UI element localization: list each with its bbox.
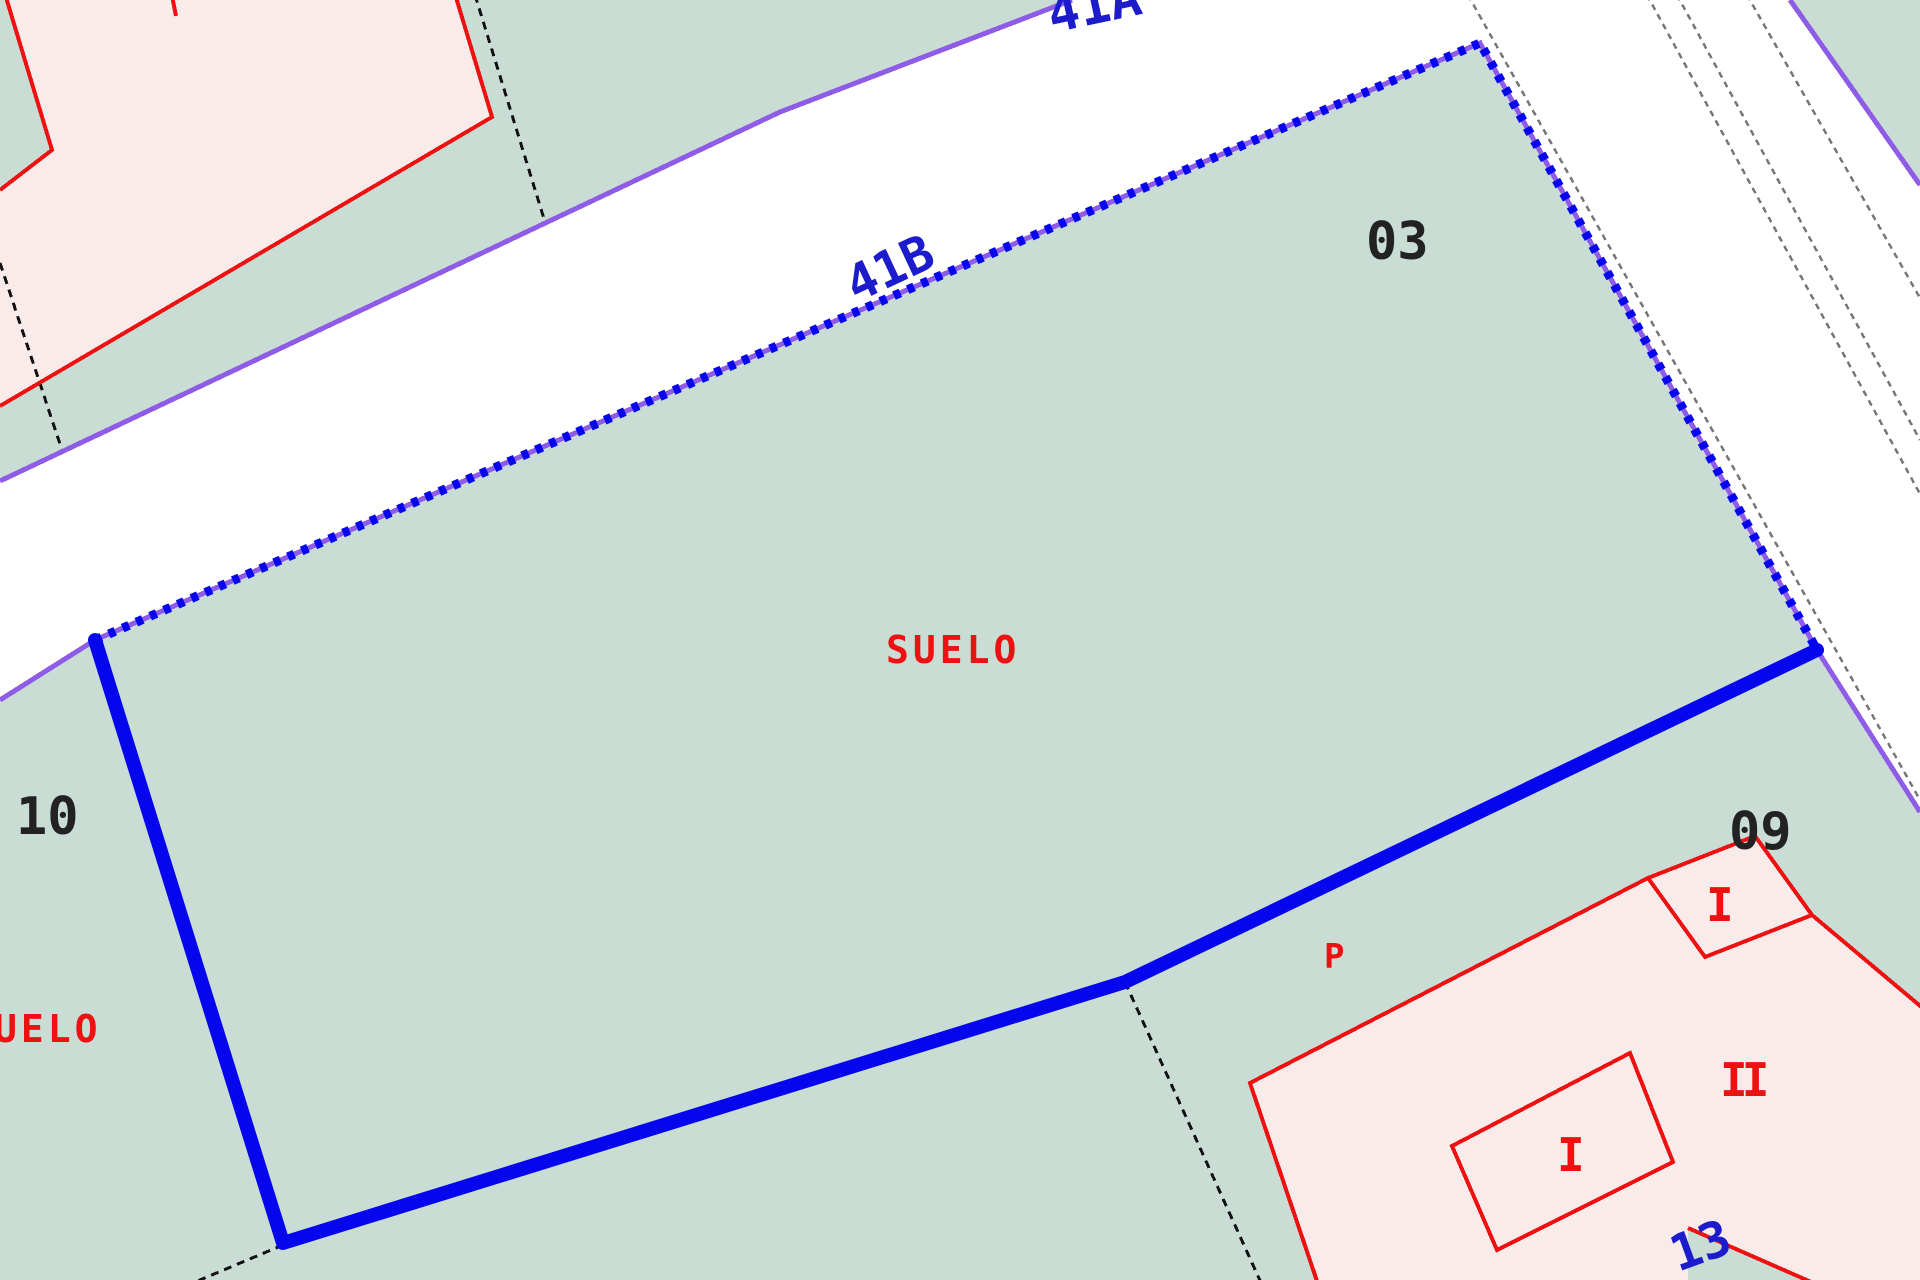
floors-one-inner-label: I xyxy=(1557,1128,1585,1182)
parcel-03-label: 03 xyxy=(1366,212,1429,272)
suelo-label-left-partial: UELO xyxy=(0,1007,102,1051)
parcel-09-label: 09 xyxy=(1729,802,1792,862)
patio-mark-label: P xyxy=(1324,937,1344,977)
floors-two-label: II xyxy=(1720,1053,1766,1107)
suelo-label-center: SUELO xyxy=(886,628,1020,672)
parcel-10-label: 10 xyxy=(16,787,79,847)
floors-one-top-label: I xyxy=(1706,878,1734,932)
cadastral-map: 41A 41B 03 SUELO 10 UELO 09 P I II I 13 xyxy=(0,0,1920,1280)
